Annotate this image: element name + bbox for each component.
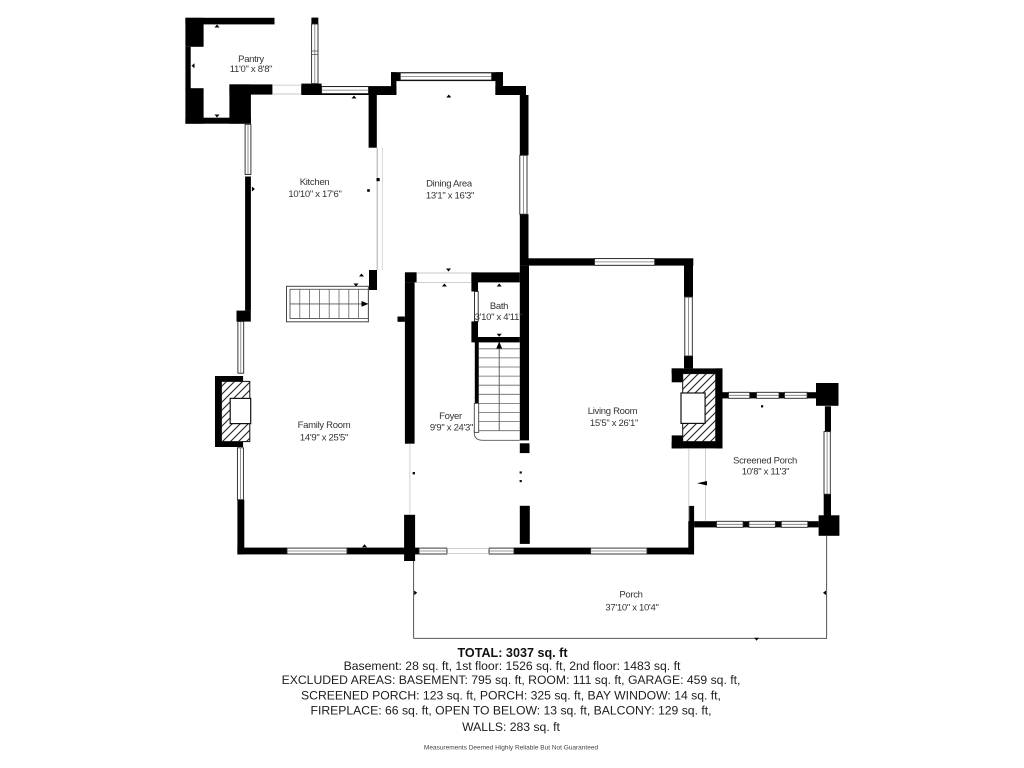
svg-text:SCREENED PORCH: 123 sq. ft, PO: SCREENED PORCH: 123 sq. ft, PORCH: 325 s… xyxy=(301,688,721,702)
svg-text:WALLS: 283 sq. ft: WALLS: 283 sq. ft xyxy=(462,720,560,734)
svg-text:Living Room: Living Room xyxy=(588,406,638,417)
svg-text:Basement: 28 sq. ft, 1st floor: Basement: 28 sq. ft, 1st floor: 1526 sq.… xyxy=(344,659,681,673)
svg-text:9'9" x 24'3": 9'9" x 24'3" xyxy=(430,422,473,433)
svg-text:10'10" x 17'6": 10'10" x 17'6" xyxy=(288,189,341,200)
svg-text:Measurements Deemed Highly Rel: Measurements Deemed Highly Reliable But … xyxy=(424,744,599,751)
svg-text:3'10" x 4'11": 3'10" x 4'11" xyxy=(475,312,523,323)
svg-text:Bath: Bath xyxy=(490,301,508,312)
svg-text:37'10" x 10'4": 37'10" x 10'4" xyxy=(605,602,658,613)
svg-text:Kitchen: Kitchen xyxy=(300,177,330,188)
svg-text:EXCLUDED AREAS: BASEMENT: 795: EXCLUDED AREAS: BASEMENT: 795 sq. ft, RO… xyxy=(282,673,741,687)
svg-text:Family Room: Family Room xyxy=(298,420,351,431)
svg-text:11'0" x 8'8": 11'0" x 8'8" xyxy=(230,64,273,75)
svg-text:Porch: Porch xyxy=(619,590,642,601)
svg-text:Foyer: Foyer xyxy=(439,411,462,422)
svg-text:14'9" x 25'5": 14'9" x 25'5" xyxy=(300,432,348,443)
svg-text:Dining Area: Dining Area xyxy=(426,179,473,190)
svg-text:FIREPLACE: 66 sq. ft, OPEN TO: FIREPLACE: 66 sq. ft, OPEN TO BELOW: 13 … xyxy=(311,704,712,718)
svg-text:Screened Porch: Screened Porch xyxy=(733,455,797,466)
svg-text:13'1" x 16'3": 13'1" x 16'3" xyxy=(426,190,474,201)
svg-text:10'8" x 11'3": 10'8" x 11'3" xyxy=(742,467,790,478)
svg-text:15'5" x 26'1": 15'5" x 26'1" xyxy=(590,418,638,429)
